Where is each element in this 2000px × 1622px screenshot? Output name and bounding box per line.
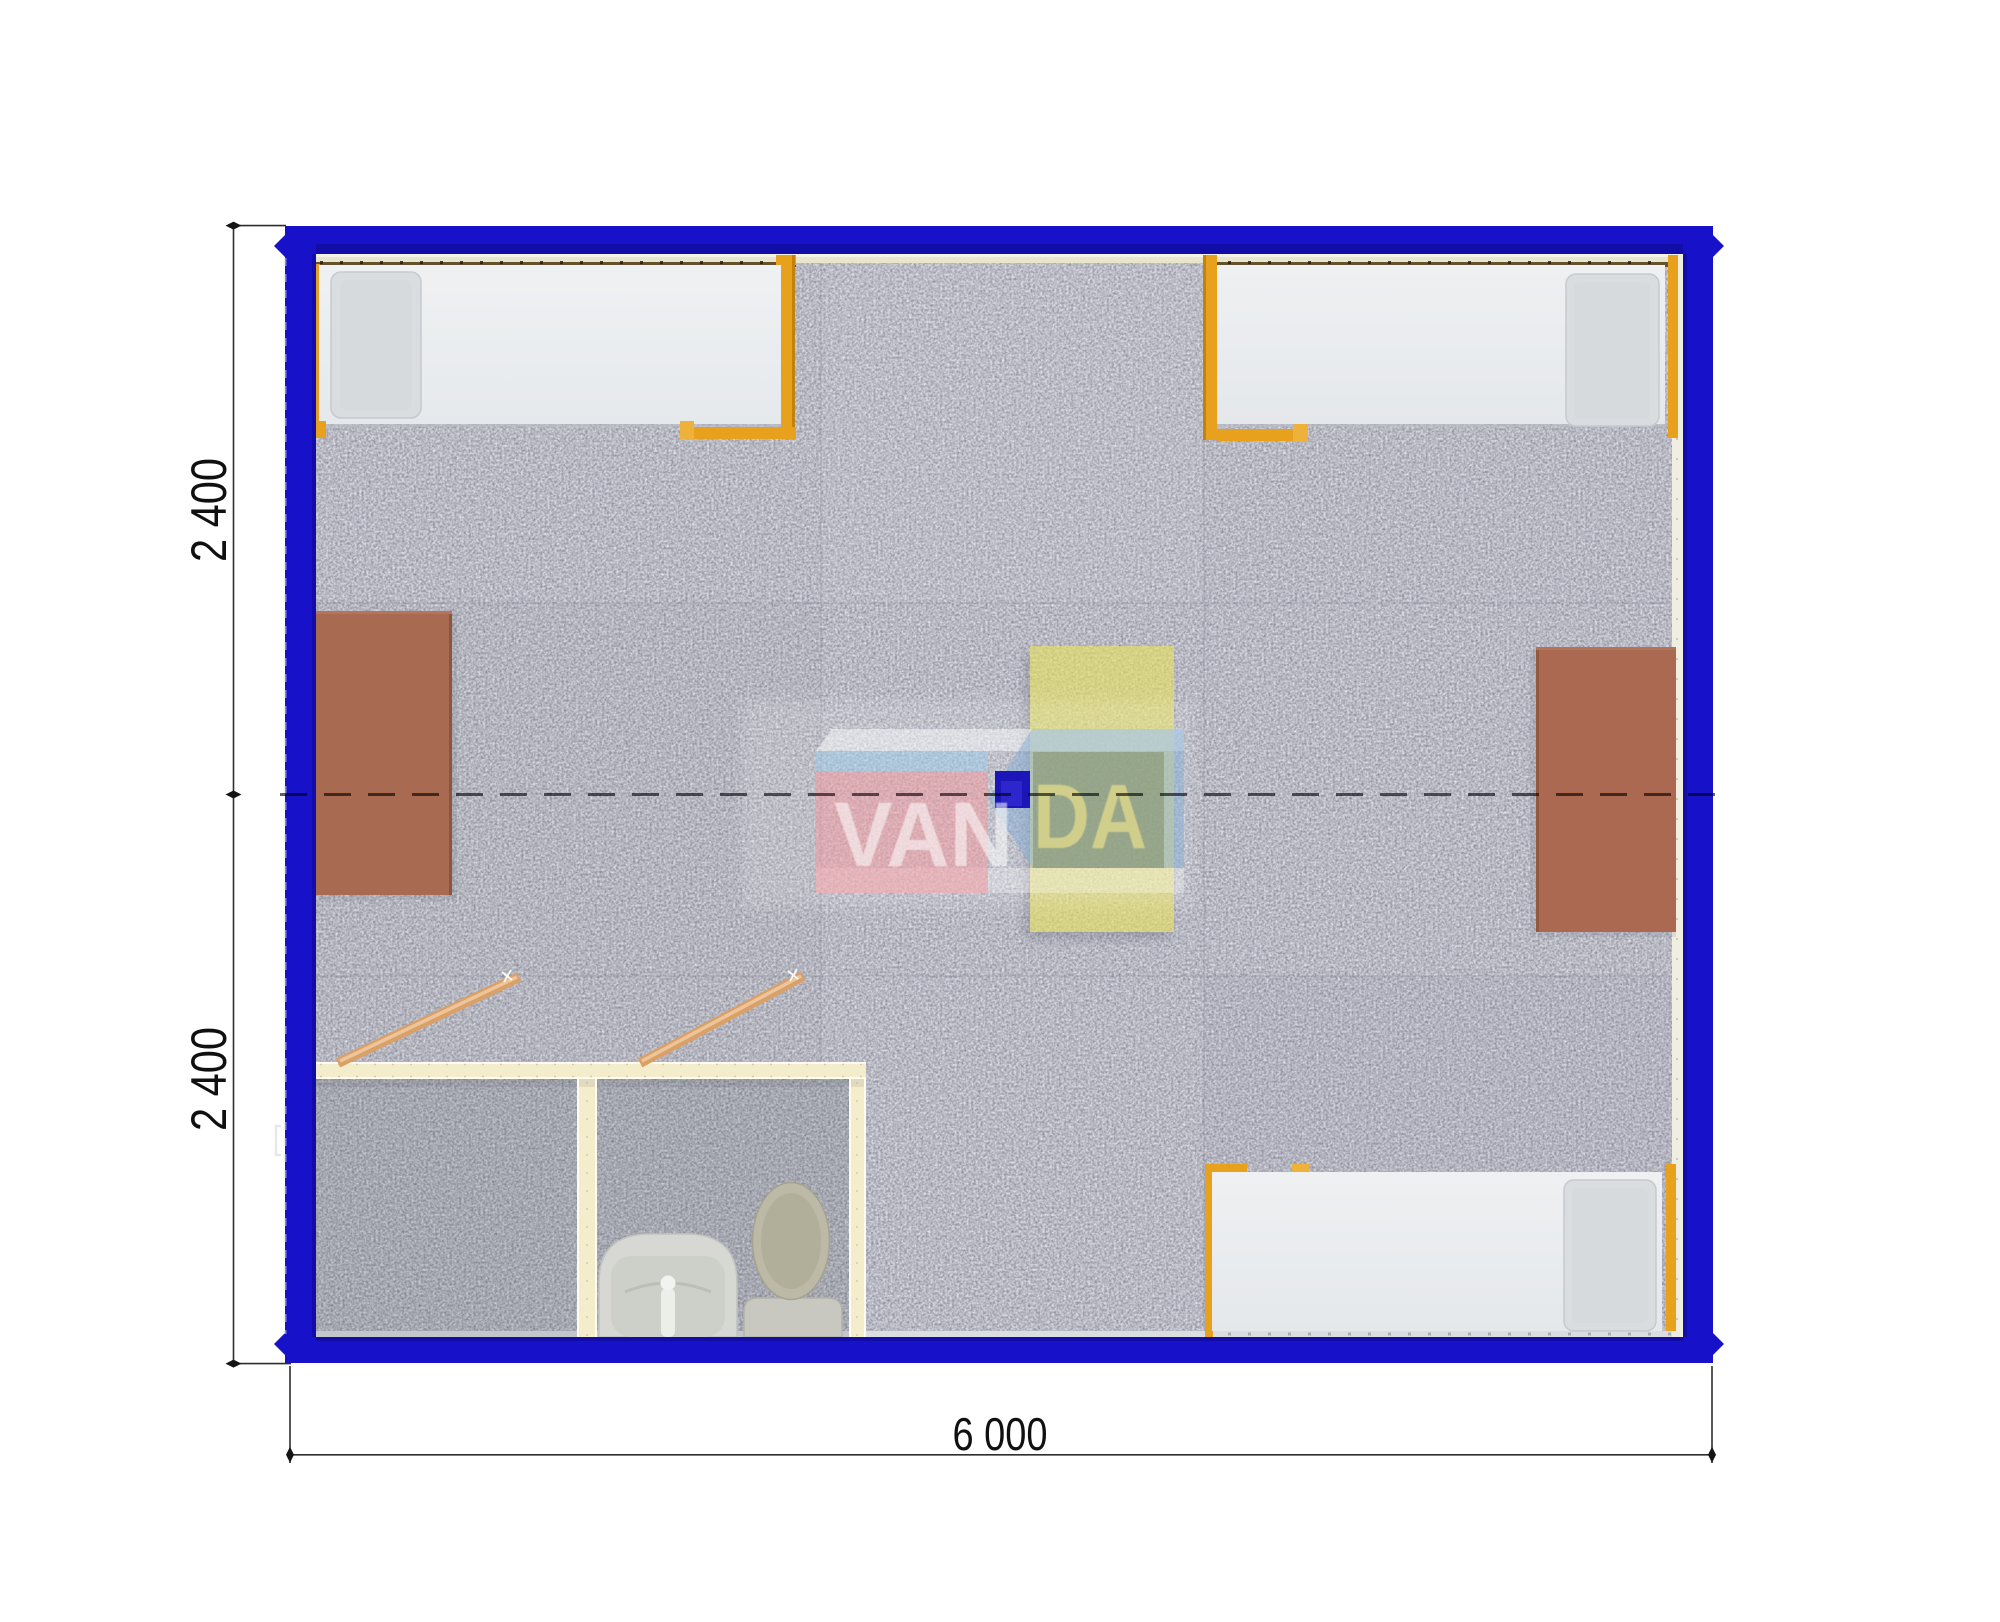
- svg-text:2 400: 2 400: [181, 458, 237, 562]
- svg-text:VAN: VAN: [834, 784, 1013, 886]
- svg-text:2 400: 2 400: [181, 1027, 237, 1131]
- svg-text:DA: DA: [1033, 766, 1147, 868]
- svg-text:6 000: 6 000: [953, 1408, 1048, 1460]
